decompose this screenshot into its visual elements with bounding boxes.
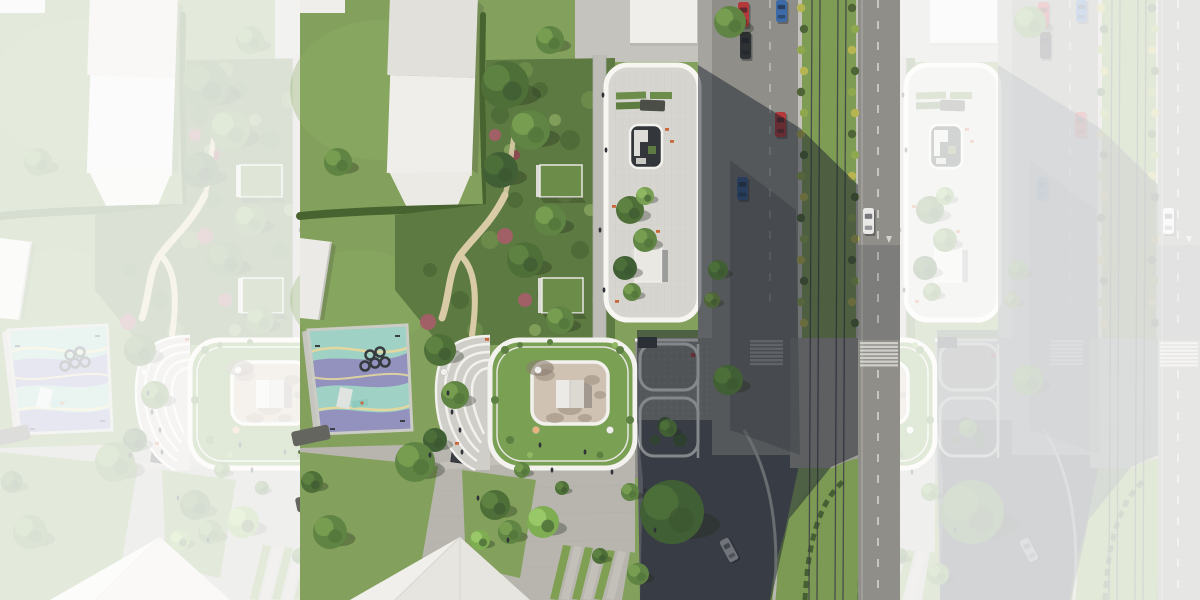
screenshot-root <box>0 0 1200 600</box>
aerial-architectural-rendering <box>0 0 1200 600</box>
sharp-center-view <box>290 0 900 600</box>
